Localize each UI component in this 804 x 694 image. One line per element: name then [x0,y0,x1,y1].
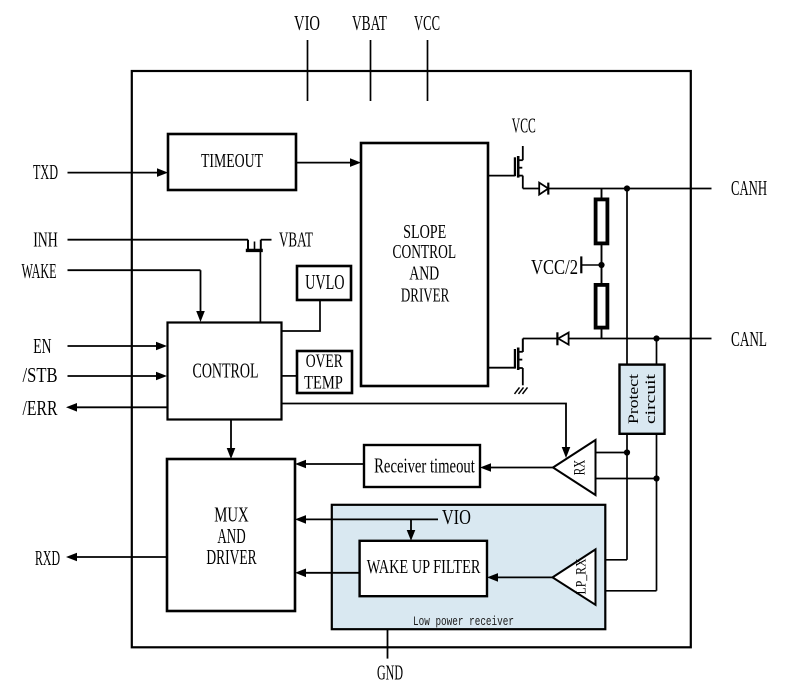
svg-text:OVER: OVER [306,352,344,372]
svg-text:TEMP: TEMP [304,373,343,393]
svg-text:VBAT: VBAT [279,228,313,252]
svg-text:SLOPE: SLOPE [403,221,446,243]
svg-text:RXD: RXD [35,546,60,570]
svg-text:DRIVER: DRIVER [206,545,256,569]
svg-text:CONTROL: CONTROL [393,241,457,263]
svg-text:INH: INH [33,228,58,252]
svg-text:VCC/2: VCC/2 [531,255,578,279]
svg-text:VBAT: VBAT [352,11,387,35]
svg-text:VIO: VIO [442,505,471,529]
svg-text:WAKE: WAKE [22,259,57,283]
svg-text:AND: AND [409,262,439,284]
svg-text:Protect: Protect [626,373,642,424]
svg-text:/STB: /STB [23,363,58,387]
svg-text:CANL: CANL [731,327,767,351]
svg-text:/ERR: /ERR [23,396,58,420]
svg-text:WAKE UP FILTER: WAKE UP FILTER [367,556,481,578]
svg-text:UVLO: UVLO [305,270,344,294]
svg-text:TIMEOUT: TIMEOUT [201,150,263,172]
svg-text:LP_RX: LP_RX [573,558,589,594]
svg-text:circuit: circuit [643,373,659,424]
svg-text:EN: EN [33,334,51,358]
svg-text:DRIVER: DRIVER [401,284,450,306]
svg-text:Receiver timeout: Receiver timeout [374,454,475,478]
svg-text:CONTROL: CONTROL [193,359,259,383]
svg-text:GND: GND [377,660,403,684]
svg-text:VIO: VIO [294,11,320,35]
svg-text:Low power receiver: Low power receiver [413,614,514,629]
svg-text:VCC: VCC [414,11,440,35]
svg-text:TXD: TXD [33,160,58,184]
svg-text:VCC: VCC [512,113,536,137]
svg-text:RX: RX [572,460,589,476]
svg-text:CANH: CANH [731,176,767,200]
